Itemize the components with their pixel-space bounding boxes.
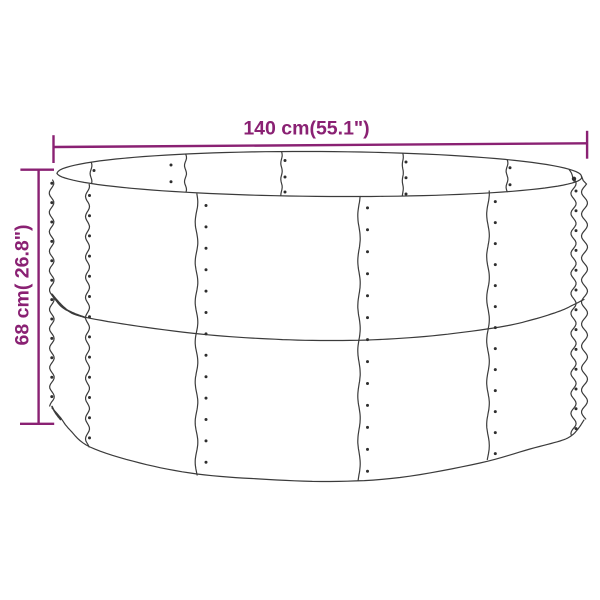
svg-text:140 cm(55.1"): 140 cm(55.1"): [243, 117, 369, 139]
svg-text:68 cm( 26.8"): 68 cm( 26.8"): [12, 225, 34, 346]
